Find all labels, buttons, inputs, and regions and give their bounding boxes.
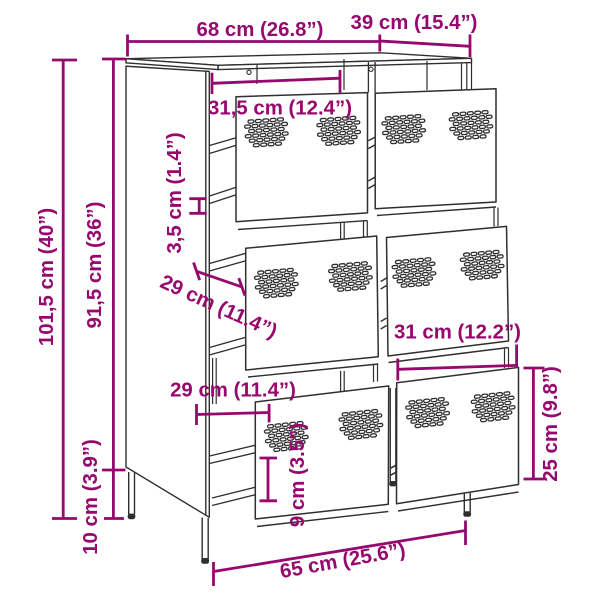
svg-text:31 cm (12.2”): 31 cm (12.2”) bbox=[394, 322, 521, 344]
svg-text:31,5 cm (12.4”): 31,5 cm (12.4”) bbox=[208, 98, 352, 120]
svg-text:101,5 cm (40”): 101,5 cm (40”) bbox=[36, 208, 58, 346]
svg-text:9 cm (3.5”): 9 cm (3.5”) bbox=[287, 423, 309, 527]
svg-text:91,5 cm (36”): 91,5 cm (36”) bbox=[84, 202, 106, 329]
svg-text:39 cm (15.4”): 39 cm (15.4”) bbox=[351, 12, 478, 34]
svg-text:68 cm (26.8”): 68 cm (26.8”) bbox=[197, 19, 324, 41]
svg-text:3,5 cm (1.4”): 3,5 cm (1.4”) bbox=[164, 132, 186, 253]
svg-text:29 cm (11.4”): 29 cm (11.4”) bbox=[170, 380, 296, 402]
svg-text:10 cm (3.9”): 10 cm (3.9”) bbox=[80, 439, 102, 555]
svg-text:25 cm (9.8”): 25 cm (9.8”) bbox=[540, 366, 562, 482]
